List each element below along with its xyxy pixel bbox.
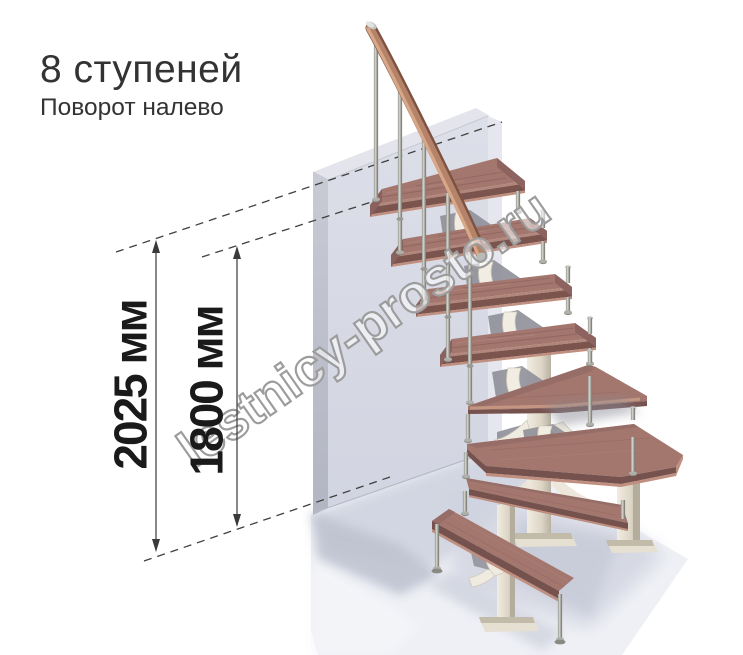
svg-text:Поворот налево: Поворот налево	[40, 94, 224, 121]
svg-text:1800 мм: 1800 мм	[181, 306, 233, 475]
svg-text:2025 мм: 2025 мм	[105, 300, 157, 469]
svg-text:8 ступеней: 8 ступеней	[40, 48, 243, 91]
